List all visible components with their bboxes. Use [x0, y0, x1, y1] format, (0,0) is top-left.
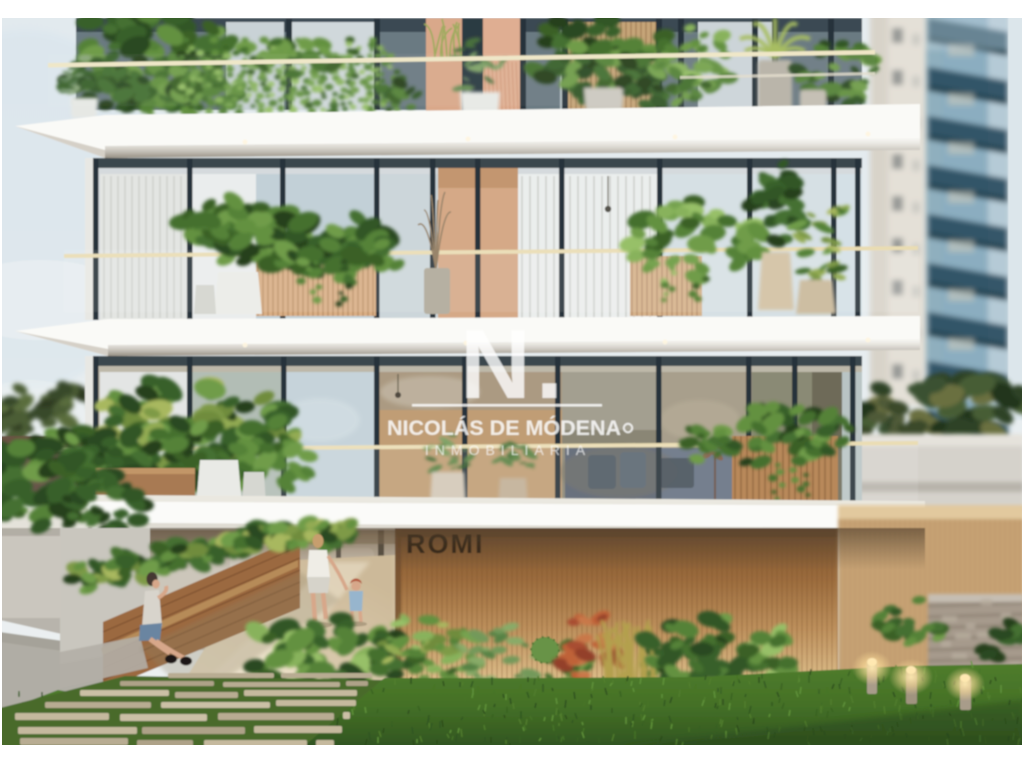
svg-text:NICOLÁS DE MÓDENA: NICOLÁS DE MÓDENA: [387, 415, 621, 440]
svg-text:N.: N.: [460, 309, 568, 419]
svg-text:INMOBILIARIA: INMOBILIARIA: [425, 442, 591, 458]
